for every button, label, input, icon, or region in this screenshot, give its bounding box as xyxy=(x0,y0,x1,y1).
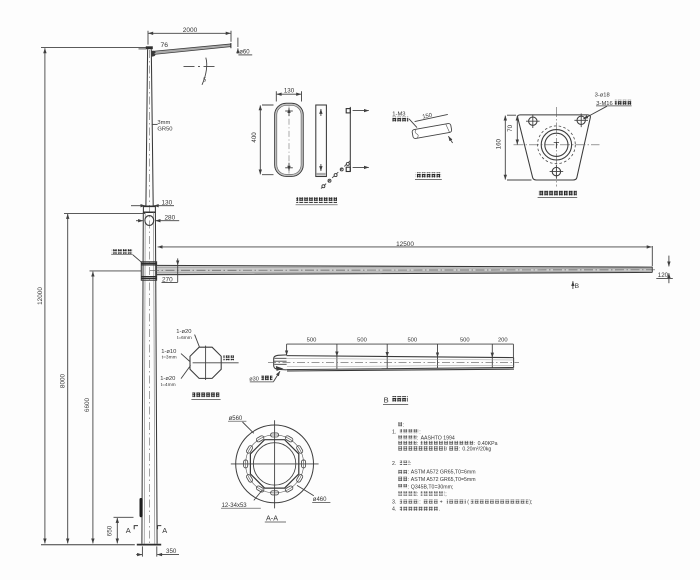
svg-text:.: . xyxy=(439,507,440,513)
svg-text:1-ø10: 1-ø10 xyxy=(161,349,176,355)
svg-text:8000: 8000 xyxy=(60,373,67,388)
svg-text:);: ); xyxy=(529,499,532,505)
svg-text:130: 130 xyxy=(162,199,173,206)
svg-text:+: + xyxy=(440,499,443,505)
svg-text:A: A xyxy=(162,526,167,535)
svg-text:3-ø18: 3-ø18 xyxy=(595,92,610,98)
svg-text:1-ø20: 1-ø20 xyxy=(160,376,175,382)
svg-text::: : xyxy=(408,470,409,476)
svg-text:1-ø20: 1-ø20 xyxy=(176,329,191,335)
svg-text:ASTM A572 GR65,T0=6mm: ASTM A572 GR65,T0=6mm xyxy=(411,470,476,476)
svg-text::: : xyxy=(410,461,411,467)
svg-text:B: B xyxy=(384,395,389,404)
svg-text:270: 270 xyxy=(162,277,173,284)
svg-text:1.: 1. xyxy=(392,430,396,436)
svg-text:400: 400 xyxy=(251,132,258,143)
svg-text:650: 650 xyxy=(107,525,114,536)
svg-text:6600: 6600 xyxy=(84,397,91,412)
svg-text:500: 500 xyxy=(307,338,317,344)
svg-text:500: 500 xyxy=(460,338,470,344)
svg-text::: : xyxy=(419,430,420,436)
svg-text:A-A: A-A xyxy=(266,513,278,522)
svg-text:t=4mm: t=4mm xyxy=(161,382,176,388)
svg-text:130: 130 xyxy=(284,87,295,94)
svg-text:0.20m²/20kg: 0.20m²/20kg xyxy=(462,447,491,453)
svg-text:1-M3: 1-M3 xyxy=(392,111,405,117)
svg-text:(: ( xyxy=(467,499,469,505)
svg-text:4.: 4. xyxy=(392,507,396,513)
svg-text:350: 350 xyxy=(166,548,177,555)
svg-text:200: 200 xyxy=(498,338,508,344)
svg-text:ASTM A572 GR65,T0=5mm: ASTM A572 GR65,T0=5mm xyxy=(411,477,476,483)
svg-text::: : xyxy=(417,492,418,498)
svg-text:3mm: 3mm xyxy=(157,120,170,126)
svg-text:t=6mm: t=6mm xyxy=(177,335,192,341)
svg-text:2.: 2. xyxy=(392,461,396,467)
svg-text:;: ; xyxy=(445,492,446,498)
svg-text:B: B xyxy=(575,283,580,290)
svg-text:A: A xyxy=(126,526,131,535)
svg-text:500: 500 xyxy=(407,338,417,344)
svg-text::: : xyxy=(459,447,460,453)
svg-text:76: 76 xyxy=(161,42,169,49)
svg-text::: : xyxy=(403,422,404,428)
svg-text:3.: 3. xyxy=(392,499,396,505)
svg-text::: : xyxy=(408,484,409,490)
svg-text:T: T xyxy=(554,139,560,150)
svg-text:AASHTO 1994: AASHTO 1994 xyxy=(421,436,455,442)
svg-text:GR50: GR50 xyxy=(157,126,172,132)
svg-text:70: 70 xyxy=(507,124,514,131)
svg-text:t=3mm: t=3mm xyxy=(162,354,177,360)
svg-text:12500: 12500 xyxy=(396,241,414,248)
svg-text:Q345B,T0=30mm;: Q345B,T0=30mm; xyxy=(411,484,454,490)
svg-text::: : xyxy=(419,499,420,505)
svg-text:160: 160 xyxy=(496,138,503,149)
svg-text:500: 500 xyxy=(357,338,367,344)
svg-text::: : xyxy=(408,477,409,483)
svg-text:280: 280 xyxy=(165,215,176,222)
svg-text:5: 5 xyxy=(203,78,206,84)
svg-text:2000: 2000 xyxy=(183,27,198,34)
svg-text:12000: 12000 xyxy=(37,287,44,305)
